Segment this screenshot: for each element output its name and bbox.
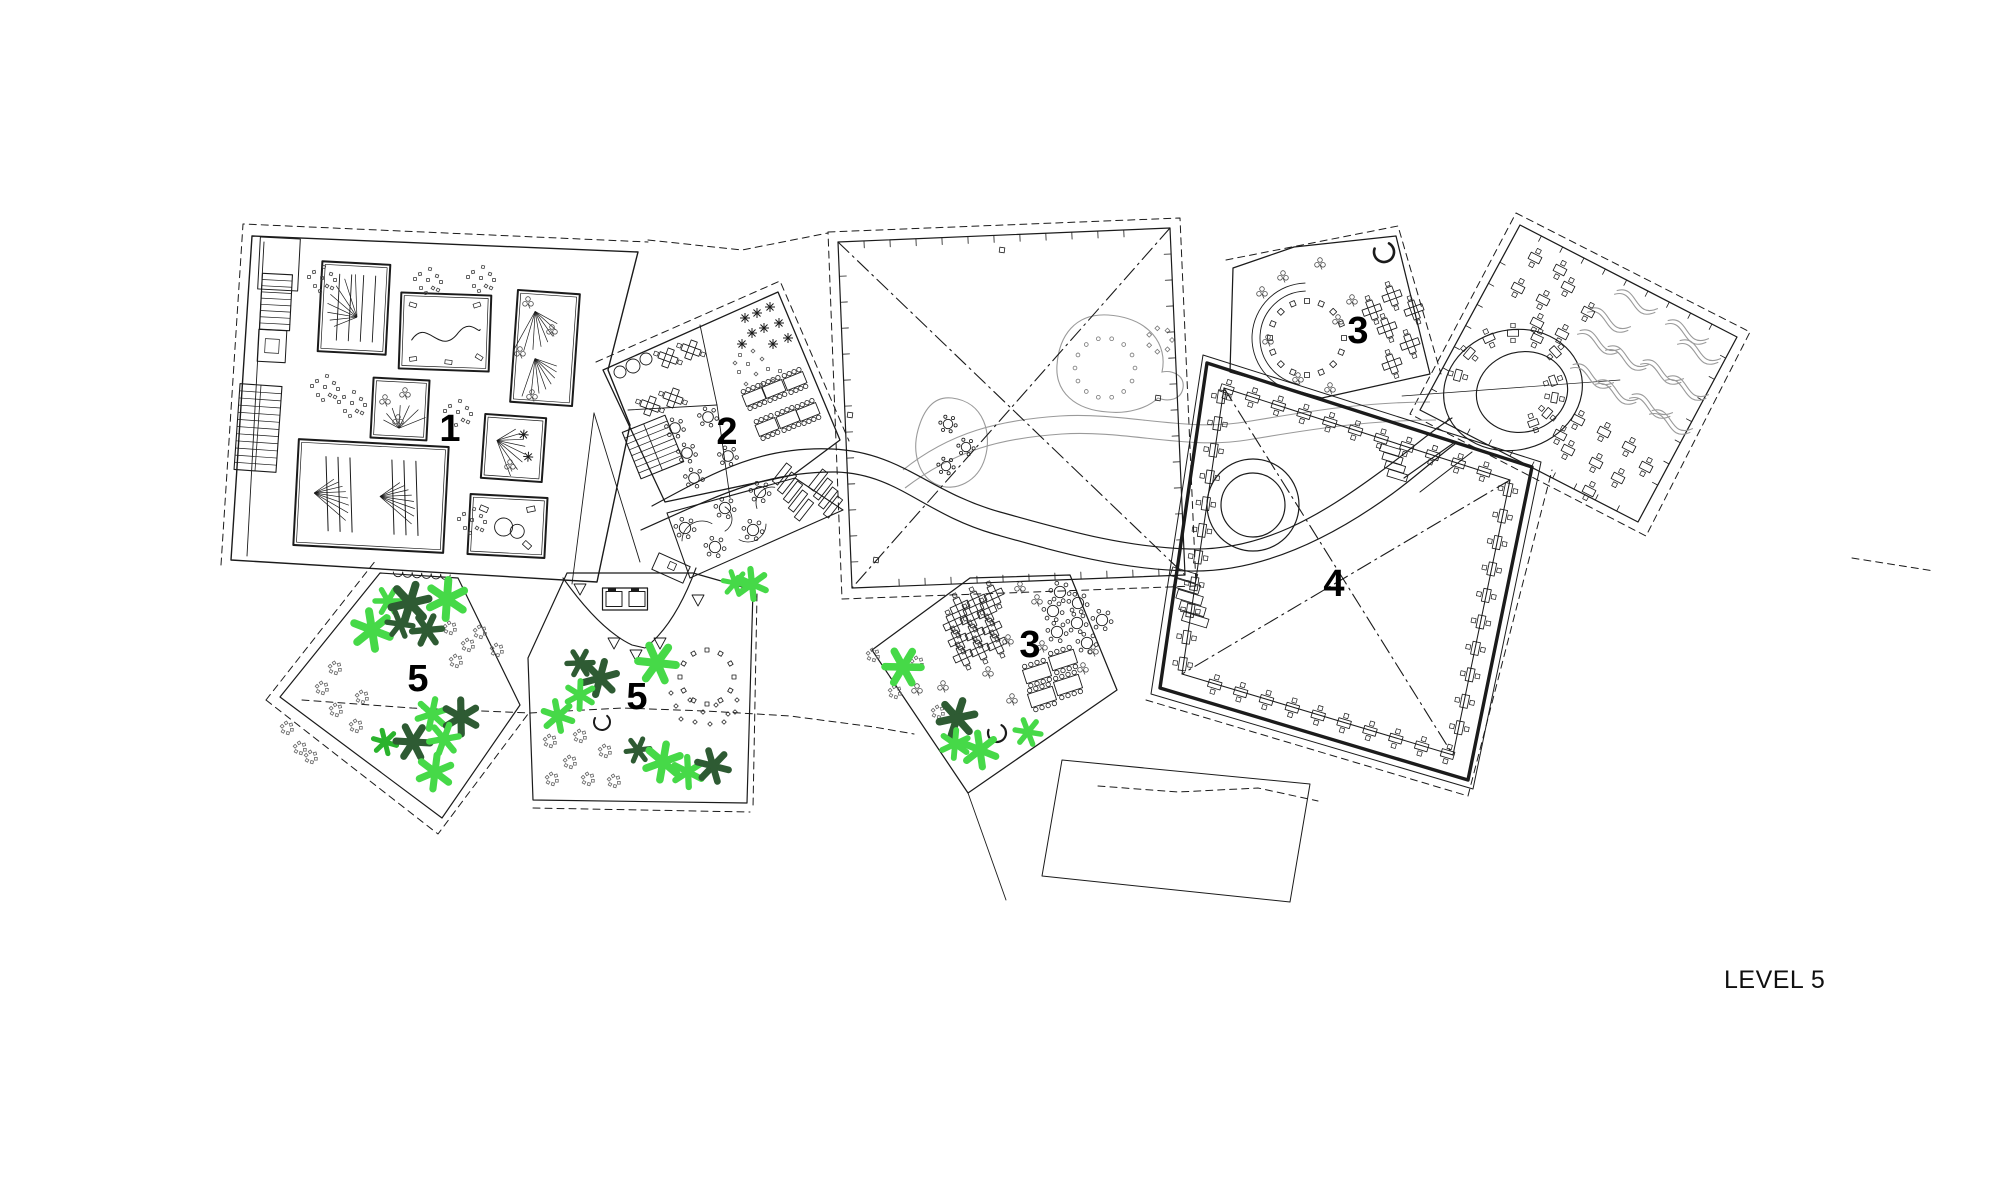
- floor-plan-canvas: 1234355 LEVEL 5: [0, 0, 2000, 1200]
- label-block-2: 2: [716, 411, 737, 453]
- label-terrace-5-right: 5: [626, 676, 647, 718]
- label-block-3-lower: 3: [1019, 624, 1040, 666]
- label-block-4: 4: [1323, 563, 1344, 605]
- label-block-3-upper: 3: [1347, 310, 1368, 352]
- label-block-1: 1: [439, 408, 460, 450]
- block-number-labels: 1234355: [407, 310, 1368, 718]
- central-courtyard: [838, 228, 1185, 588]
- label-terrace-5-left: 5: [407, 658, 428, 700]
- gray-shrubs: [280, 297, 944, 788]
- main-path: [641, 418, 1455, 571]
- terrace-5-left: [280, 573, 520, 818]
- loop-ramps: [1404, 314, 1596, 492]
- block-3-upper: [1230, 236, 1430, 398]
- floor-plan-drawing: [221, 213, 1934, 902]
- core-structure: [563, 553, 704, 661]
- water-terrace: [1402, 225, 1737, 522]
- level-label: LEVEL 5: [1724, 966, 1825, 994]
- block-1: [231, 236, 638, 582]
- block-4: [1151, 355, 1541, 789]
- drawing-sheet: 1234355 LEVEL 5: [0, 0, 2000, 1200]
